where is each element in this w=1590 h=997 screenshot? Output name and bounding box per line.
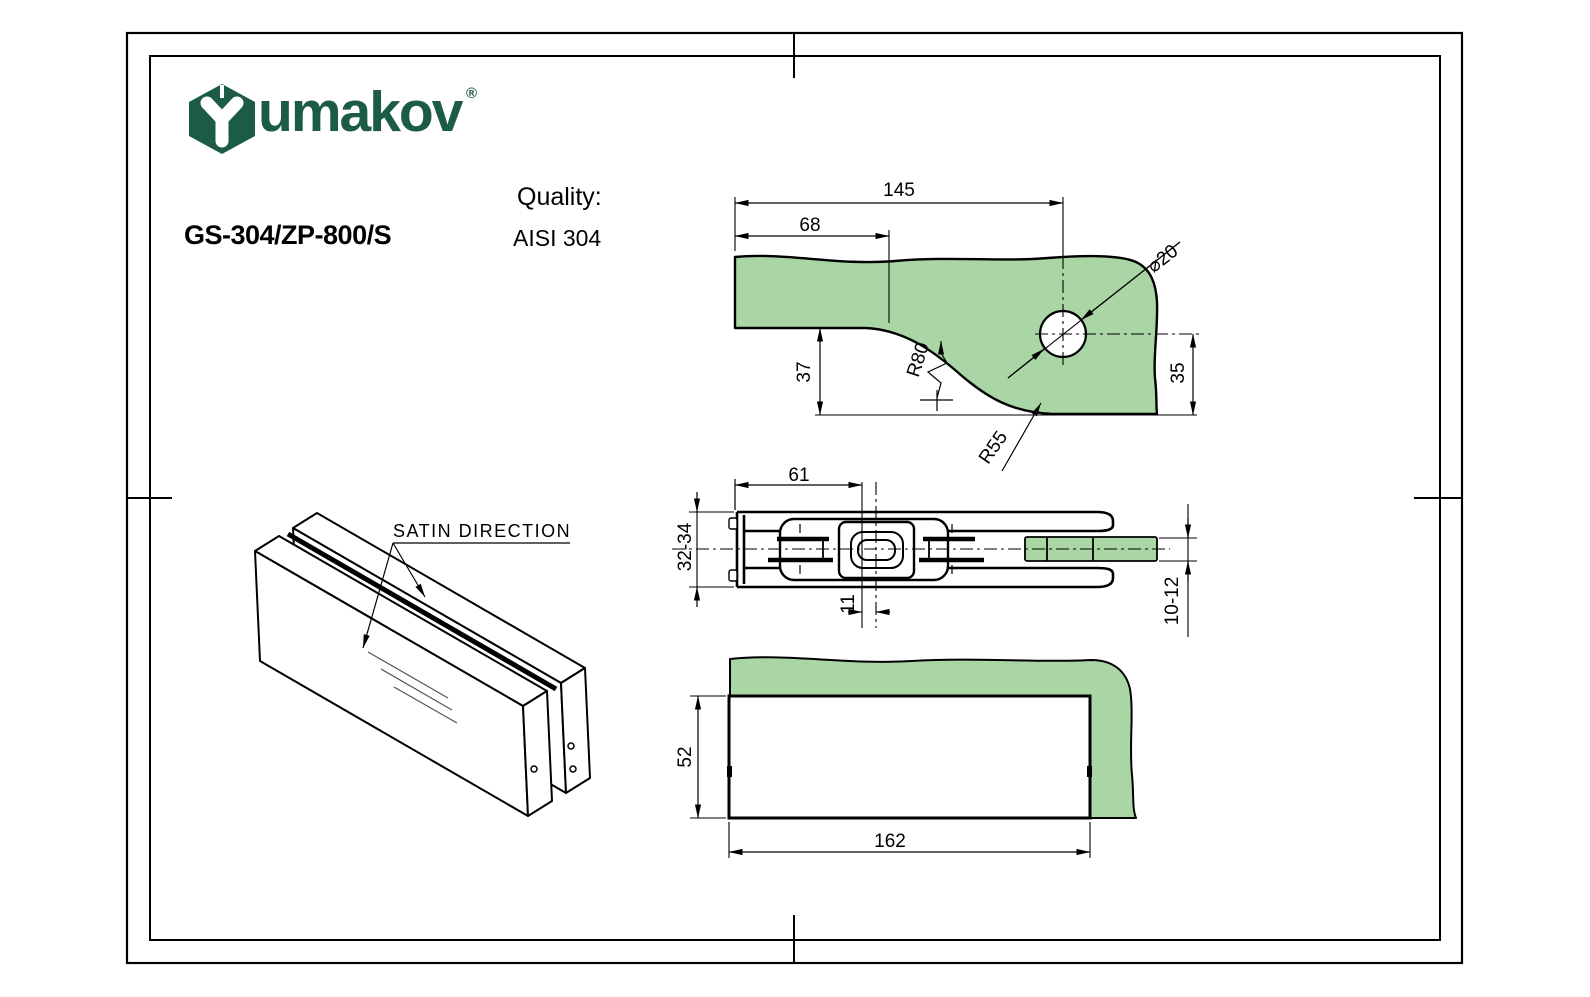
dim-37: 37 [794,361,816,382]
dim-10-12: 10-12 [1162,577,1184,626]
dim-11: 11 [838,594,860,614]
product-code: GS-304/ZP-800/S [184,222,391,249]
dim-35: 35 [1168,362,1190,383]
quality-value: AISI 304 [513,227,601,250]
dim-61: 61 [788,465,809,487]
umakov-logo-icon [189,84,255,154]
top-view [735,197,1200,471]
section-view [672,479,1197,637]
dim-52: 52 [675,746,697,767]
drawing-sheet: umakov ® GS-304/ZP-800/S Quality: AISI 3… [0,0,1590,997]
registered-mark: ® [466,86,477,101]
glass-top-view [735,256,1157,414]
dim-162: 162 [874,831,906,853]
cover-plate-face [729,696,1090,818]
border-frame [127,33,1462,963]
quality-label: Quality: [517,185,602,210]
dim-145: 145 [883,180,915,202]
dim-68: 68 [799,215,820,237]
iso-view [255,513,590,816]
brand-name: umakov [258,84,461,141]
satin-direction-label: SATIN DIRECTION [393,522,571,540]
centering-tick-marks [127,33,1462,963]
dim-32-34: 32-34 [675,523,697,572]
front-view [690,657,1136,858]
drawing-canvas [0,0,1590,997]
